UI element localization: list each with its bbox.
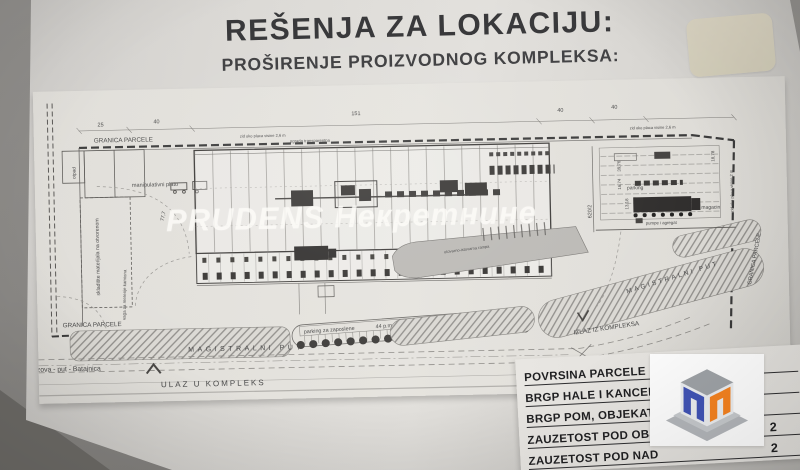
- zid-right-label: zid oko placa visine 2 m: [729, 169, 735, 212]
- dim-3976: 39,76: [616, 160, 621, 172]
- storage-label: skladište materijala na otvorenom: [94, 218, 102, 295]
- truck-scale-label: vaga za merenje kamiona: [122, 269, 128, 320]
- magacin-label: magacin: [701, 205, 720, 211]
- title-block: REŠENJA ZA LOKACIJU: PROŠIRENJE PROIZVOD…: [119, 3, 720, 79]
- dim-1878: 18,78: [710, 150, 715, 162]
- dim-1318: 13,18: [624, 198, 629, 210]
- tape-sticker: [686, 12, 777, 77]
- dim-40b: 40: [557, 108, 563, 114]
- prudens-logo: [650, 354, 764, 446]
- pazova-road-label: Pazova - put - Batajnica: [33, 366, 101, 375]
- entry-arrow: [147, 364, 161, 373]
- entrance-gate: [299, 283, 335, 315]
- dimension-line: [77, 114, 737, 134]
- otpad-label: otpad: [71, 167, 77, 179]
- fence-label: ograda transparentna: [290, 138, 331, 144]
- parking-right-label: parking: [627, 185, 644, 191]
- row-label: ZAUZETOST POD NAD: [528, 449, 659, 468]
- row-value: 2: [771, 441, 779, 455]
- dim-40c: 40: [611, 105, 617, 111]
- dim-151: 151: [351, 111, 360, 117]
- prudens-cube-icon: [663, 356, 751, 444]
- row-value: 2: [769, 420, 777, 434]
- parcel-number: 620/2: [587, 205, 593, 219]
- dim-1674: 16,74: [617, 178, 622, 190]
- granica-parcele-bottom-label: GRANICA PARCELE: [63, 321, 122, 329]
- document-paper: REŠENJA ZA LOKACIJU: PROŠIRENJE PROIZVOD…: [0, 0, 800, 470]
- agregat-label: pumpe i agregat: [646, 220, 678, 226]
- dim-40a: 40: [153, 119, 159, 125]
- photo-of-site-plan-document: REŠENJA ZA LOKACIJU: PROŠIRENJE PROIZVOD…: [0, 0, 800, 470]
- dim-25: 25: [97, 122, 103, 128]
- ulaz-label: ULAZ U KOMPLEKS: [161, 378, 266, 389]
- granica-parcele-top-label: GRANICA PARCELE: [94, 136, 153, 144]
- zid-label-right: zid oko placa visine 2,6 m: [630, 124, 677, 130]
- zid-label-left: zid oko placa visine 2,6 m: [240, 133, 287, 139]
